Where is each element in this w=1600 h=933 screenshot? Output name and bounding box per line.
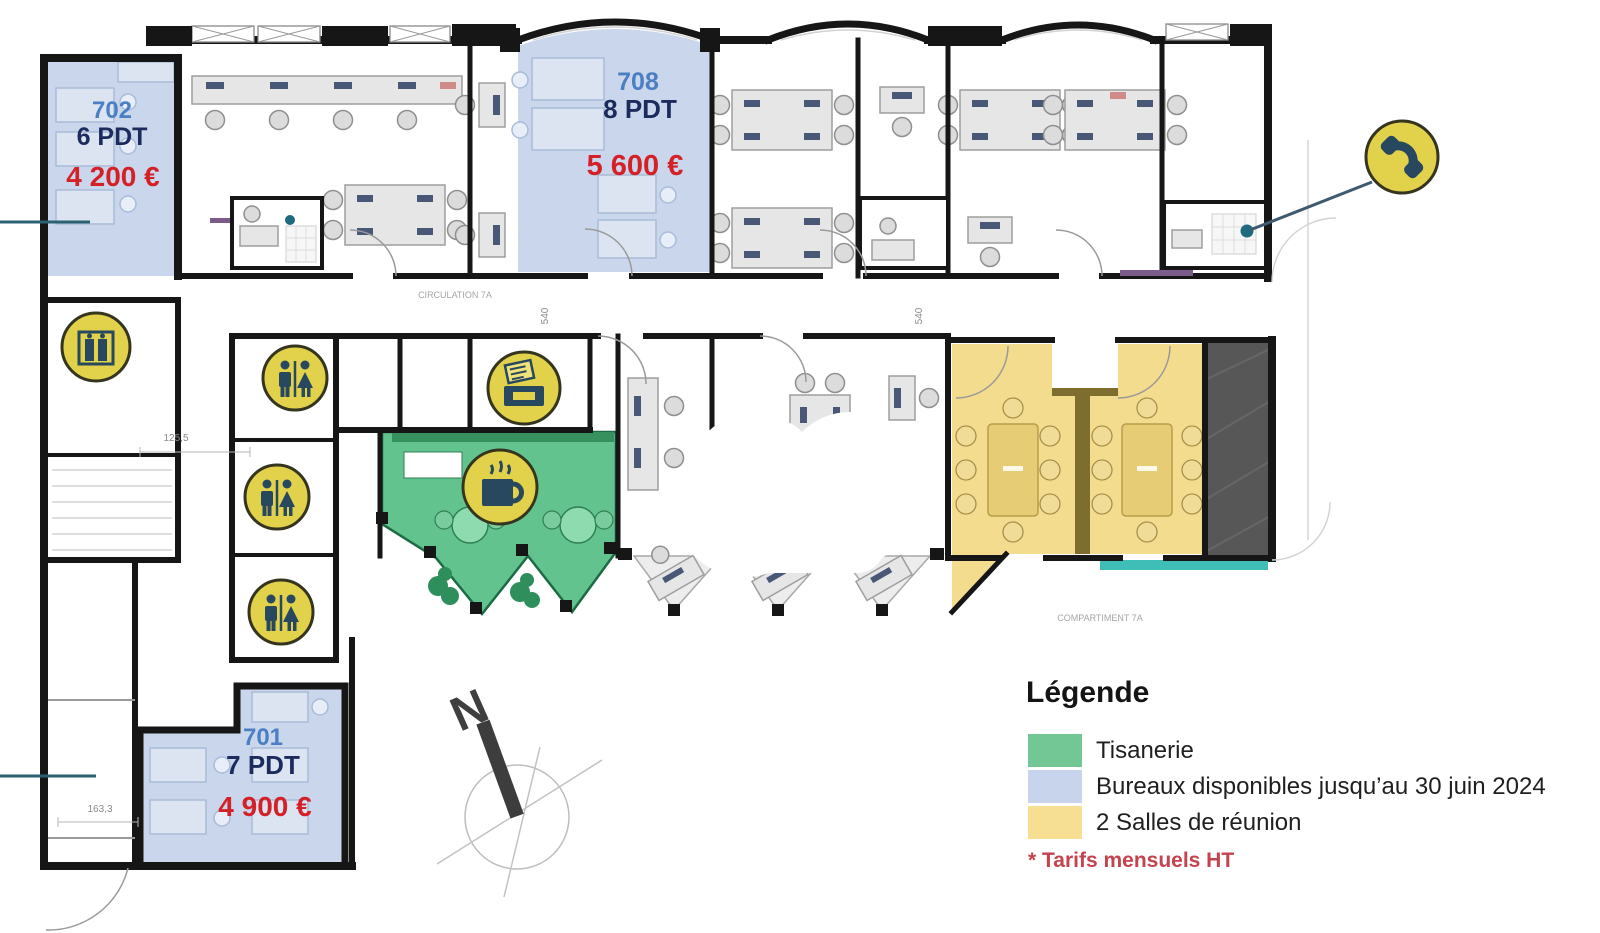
legend-label: Tisanerie — [1096, 737, 1194, 765]
room-702-price: 4 200 € — [66, 161, 160, 192]
legend-footnote: * Tarifs mensuels HT — [1028, 849, 1572, 873]
room-708-price: 5 600 € — [587, 150, 684, 182]
legend-label: 2 Salles de réunion — [1096, 809, 1301, 837]
room-701-number: 701 — [243, 724, 283, 751]
restroom-icon — [245, 465, 309, 529]
room-701-price: 4 900 € — [218, 791, 312, 822]
phone-booth-left — [232, 198, 322, 268]
legend-row-reunion: 2 Salles de réunion — [1028, 806, 1572, 839]
phone-icon — [1366, 121, 1438, 193]
dimension-label: 540 — [914, 307, 925, 324]
compass: N — [437, 680, 602, 897]
small-office-room — [860, 198, 948, 268]
compartiment-label: COMPARTIMENT 7A — [1057, 613, 1143, 623]
glazing-teal-strip — [1100, 560, 1268, 570]
meeting-lobby — [1052, 344, 1118, 392]
terrace-area — [1205, 340, 1272, 558]
dimension-label: 125,5 — [163, 433, 188, 444]
room-708-capacity: 8 PDT — [603, 94, 677, 124]
circulation-label: CIRCULATION 7A — [418, 290, 492, 300]
legend-label: Bureaux disponibles jusqu’au 30 juin 202… — [1096, 773, 1546, 801]
elevator-icon — [62, 313, 130, 381]
dimension-label: 163,3 — [87, 804, 112, 815]
stairwell — [52, 470, 172, 550]
watermark — [673, 412, 918, 577]
legend-row-bureaux: Bureaux disponibles jusqu’au 30 juin 202… — [1028, 770, 1572, 803]
room-702-capacity: 6 PDT — [77, 123, 148, 151]
floor-plan-page: N 702 6 PDT 4 200 € 708 8 PDT 5 600 € 70… — [0, 0, 1600, 933]
legend-title: Légende — [1026, 676, 1572, 710]
meeting-lobby-wall — [1052, 388, 1118, 396]
printer-icon — [488, 352, 560, 424]
room-708-number: 708 — [617, 68, 659, 96]
coffee-icon — [463, 450, 537, 524]
legend-swatch-tisanerie — [1028, 734, 1082, 767]
room-701-capacity: 7 PDT — [226, 750, 300, 780]
legend-swatch-bureaux — [1028, 770, 1082, 803]
restroom-icon — [249, 580, 313, 644]
restroom-icon — [263, 346, 327, 410]
phone-booth-right — [1164, 202, 1266, 268]
dimension-label: 540 — [540, 307, 551, 324]
meeting-divider-wall — [1075, 392, 1090, 554]
legend-swatch-reunion — [1028, 806, 1082, 839]
room-702-number: 702 — [92, 97, 132, 124]
legend-row-tisanerie: Tisanerie — [1028, 734, 1572, 767]
legend: Légende Tisanerie Bureaux disponibles ju… — [1012, 676, 1572, 873]
